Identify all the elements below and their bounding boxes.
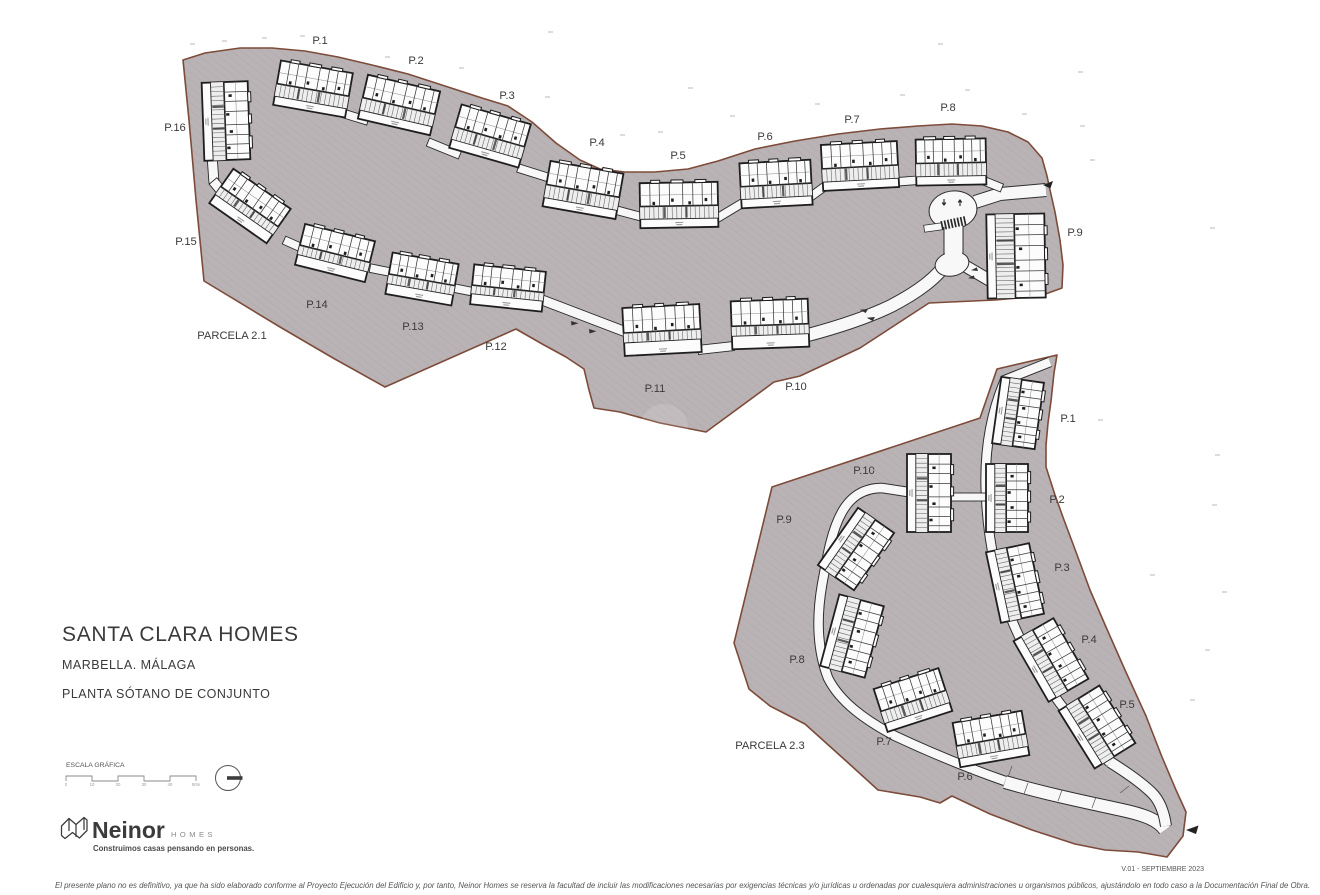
- svg-text:P.1: P.1: [1060, 413, 1075, 425]
- svg-text:P.12: P.12: [485, 341, 507, 353]
- svg-text:P.13: P.13: [402, 321, 424, 333]
- svg-text:P.7: P.7: [844, 114, 859, 126]
- svg-text:P.6: P.6: [757, 131, 772, 143]
- svg-text:P.5: P.5: [670, 150, 685, 162]
- svg-text:P.8: P.8: [940, 102, 955, 114]
- svg-text:30: 30: [142, 782, 147, 787]
- svg-text:40: 40: [168, 782, 173, 787]
- svg-text:P.10: P.10: [853, 465, 875, 477]
- svg-text:P.4: P.4: [589, 137, 604, 149]
- svg-text:Construimos casas pensando en: Construimos casas pensando en personas.: [93, 844, 254, 853]
- svg-text:P.9: P.9: [1067, 227, 1082, 239]
- svg-text:P.4: P.4: [1081, 634, 1096, 646]
- svg-text:P.16: P.16: [164, 122, 186, 134]
- svg-text:20: 20: [116, 782, 121, 787]
- svg-text:PLANTA SÓTANO DE CONJUNTO: PLANTA SÓTANO DE CONJUNTO: [62, 686, 270, 701]
- svg-text:PARCELA 2.1: PARCELA 2.1: [197, 330, 266, 342]
- svg-text:P.9: P.9: [776, 514, 791, 526]
- svg-text:MARBELLA. MÁLAGA: MARBELLA. MÁLAGA: [62, 657, 196, 672]
- svg-text:P.5: P.5: [1119, 699, 1134, 711]
- svg-text:P.14: P.14: [306, 299, 328, 311]
- svg-text:P.7: P.7: [876, 736, 891, 748]
- svg-text:SANTA CLARA HOMES: SANTA CLARA HOMES: [62, 623, 299, 646]
- svg-text:El presente plano no es defini: El presente plano no es definitivo, ya q…: [55, 881, 1310, 890]
- svg-text:50m: 50m: [192, 782, 201, 787]
- svg-text:P.15: P.15: [175, 236, 197, 248]
- svg-text:HOMES: HOMES: [171, 830, 216, 839]
- svg-text:10: 10: [90, 782, 95, 787]
- svg-text:PARCELA 2.3: PARCELA 2.3: [735, 740, 804, 752]
- svg-text:P.10: P.10: [785, 381, 807, 393]
- svg-text:P.6: P.6: [957, 771, 972, 783]
- svg-text:P.3: P.3: [1054, 562, 1069, 574]
- svg-text:P.8: P.8: [789, 654, 804, 666]
- svg-text:V.01 - SEPTIEMBRE 2023: V.01 - SEPTIEMBRE 2023: [1121, 866, 1204, 873]
- svg-text:Neinor: Neinor: [92, 817, 165, 843]
- svg-text:P.3: P.3: [499, 90, 514, 102]
- svg-text:P.11: P.11: [645, 383, 666, 395]
- svg-text:ESCALA GRÁFICA: ESCALA GRÁFICA: [66, 760, 125, 769]
- svg-text:P.2: P.2: [408, 55, 423, 67]
- svg-text:P.2: P.2: [1049, 494, 1064, 506]
- svg-text:P.1: P.1: [312, 35, 327, 47]
